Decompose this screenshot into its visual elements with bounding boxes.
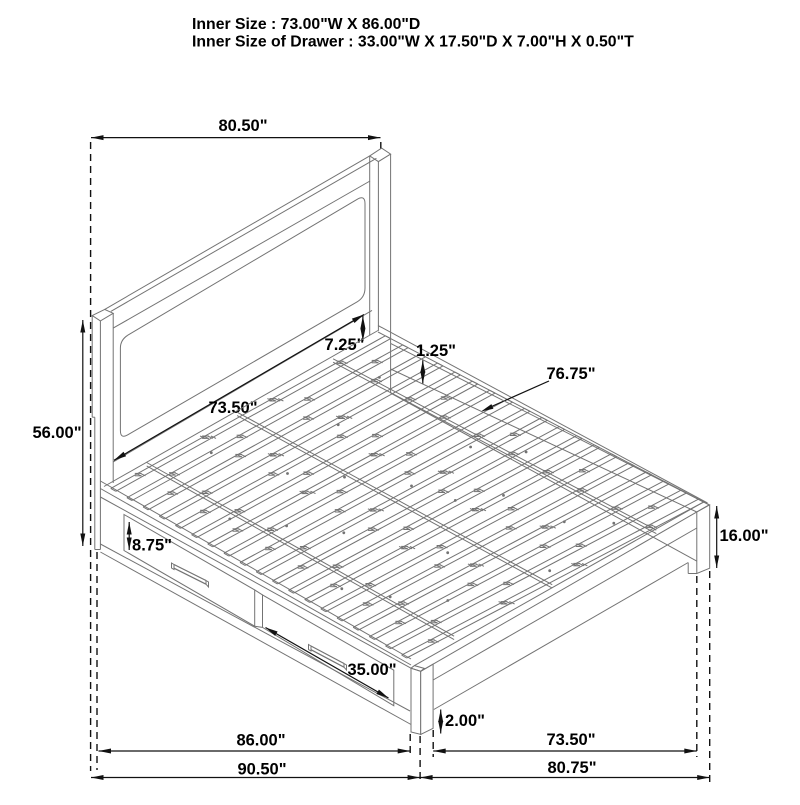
svg-text:8.75": 8.75": [132, 537, 172, 555]
svg-text:86.00": 86.00": [236, 732, 285, 750]
svg-text:Inner Size of Drawer : 33.00"W: Inner Size of Drawer : 33.00"W X 17.50"D…: [192, 34, 634, 51]
svg-text:90.50": 90.50": [237, 761, 286, 779]
svg-text:73.50": 73.50": [546, 731, 595, 749]
svg-text:7.25": 7.25": [325, 336, 365, 354]
svg-text:56.00": 56.00": [32, 424, 81, 442]
svg-text:76.75": 76.75": [546, 365, 595, 383]
svg-text:80.75": 80.75": [547, 759, 596, 777]
svg-text:2.00": 2.00": [445, 712, 485, 730]
svg-text:16.00": 16.00": [719, 527, 768, 545]
svg-text:80.50": 80.50": [218, 117, 267, 135]
svg-text:73.50": 73.50": [208, 399, 257, 417]
svg-text:Inner Size : 73.00"W X 86.00"D: Inner Size : 73.00"W X 86.00"D: [192, 16, 420, 33]
svg-text:35.00": 35.00": [347, 661, 396, 679]
svg-text:1.25": 1.25": [416, 342, 456, 360]
